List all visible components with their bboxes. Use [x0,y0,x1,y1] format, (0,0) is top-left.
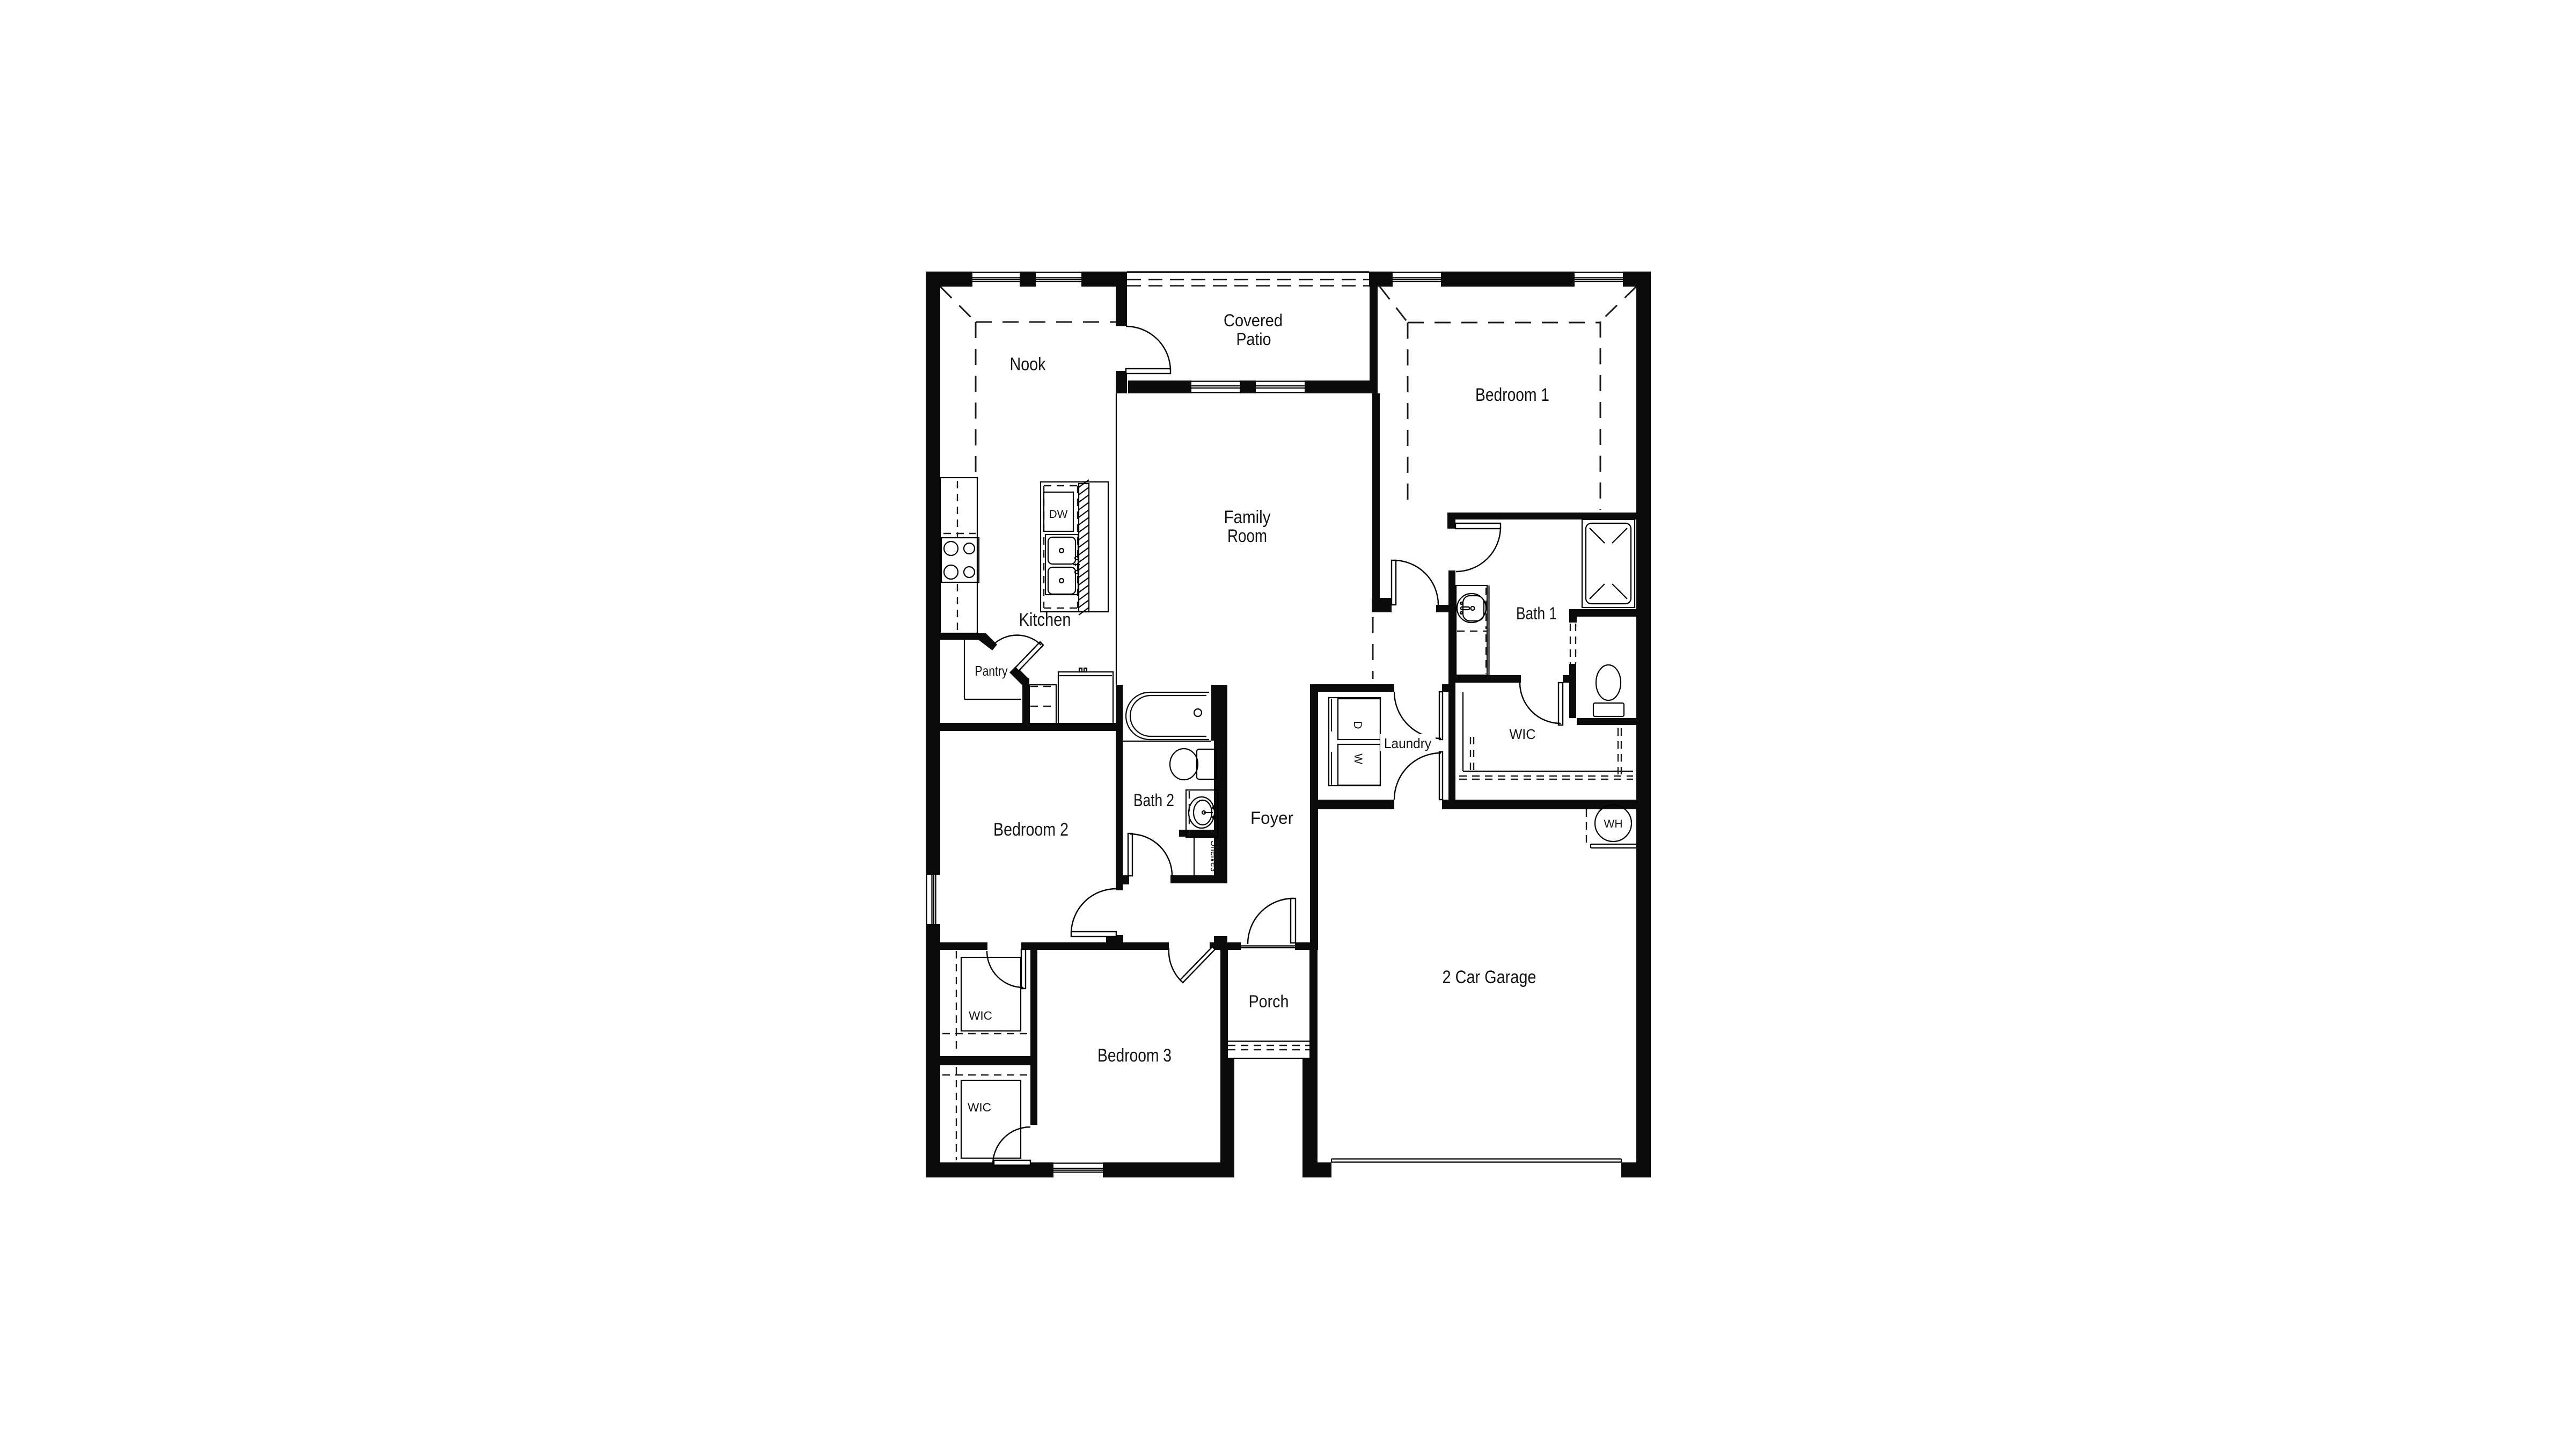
svg-text:WIC: WIC [968,1101,991,1114]
svg-text:Covered: Covered [1224,311,1283,330]
svg-text:Nook: Nook [1010,354,1046,375]
svg-text:Bedroom 1: Bedroom 1 [1475,385,1549,405]
svg-text:Room: Room [1227,526,1267,546]
svg-text:Laundry: Laundry [1384,735,1431,751]
svg-text:2 Car Garage: 2 Car Garage [1443,967,1536,987]
svg-text:Bath 1: Bath 1 [1516,604,1557,623]
svg-text:Family: Family [1224,507,1271,528]
svg-text:Kitchen: Kitchen [1019,610,1071,630]
svg-text:WIC: WIC [1510,726,1536,742]
svg-text:DW: DW [1049,508,1068,521]
svg-text:Porch: Porch [1249,992,1289,1011]
svg-text:Bedroom 3: Bedroom 3 [1097,1045,1172,1066]
svg-text:D: D [1351,721,1364,729]
svg-text:W: W [1352,753,1364,764]
svg-text:Pantry: Pantry [975,663,1008,679]
svg-text:Bath 2: Bath 2 [1133,791,1174,810]
svg-text:Patio: Patio [1236,330,1271,349]
svg-text:Shelves: Shelves [1208,840,1221,872]
svg-text:Bedroom 2: Bedroom 2 [993,819,1069,840]
svg-text:WH: WH [1604,818,1623,830]
svg-text:WIC: WIC [969,1009,992,1022]
svg-text:Foyer: Foyer [1250,808,1293,828]
